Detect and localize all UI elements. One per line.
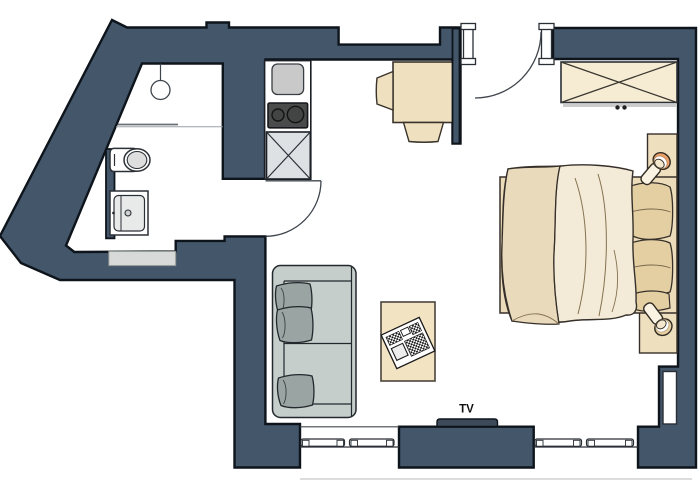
svg-text:TV: TV	[459, 404, 474, 416]
